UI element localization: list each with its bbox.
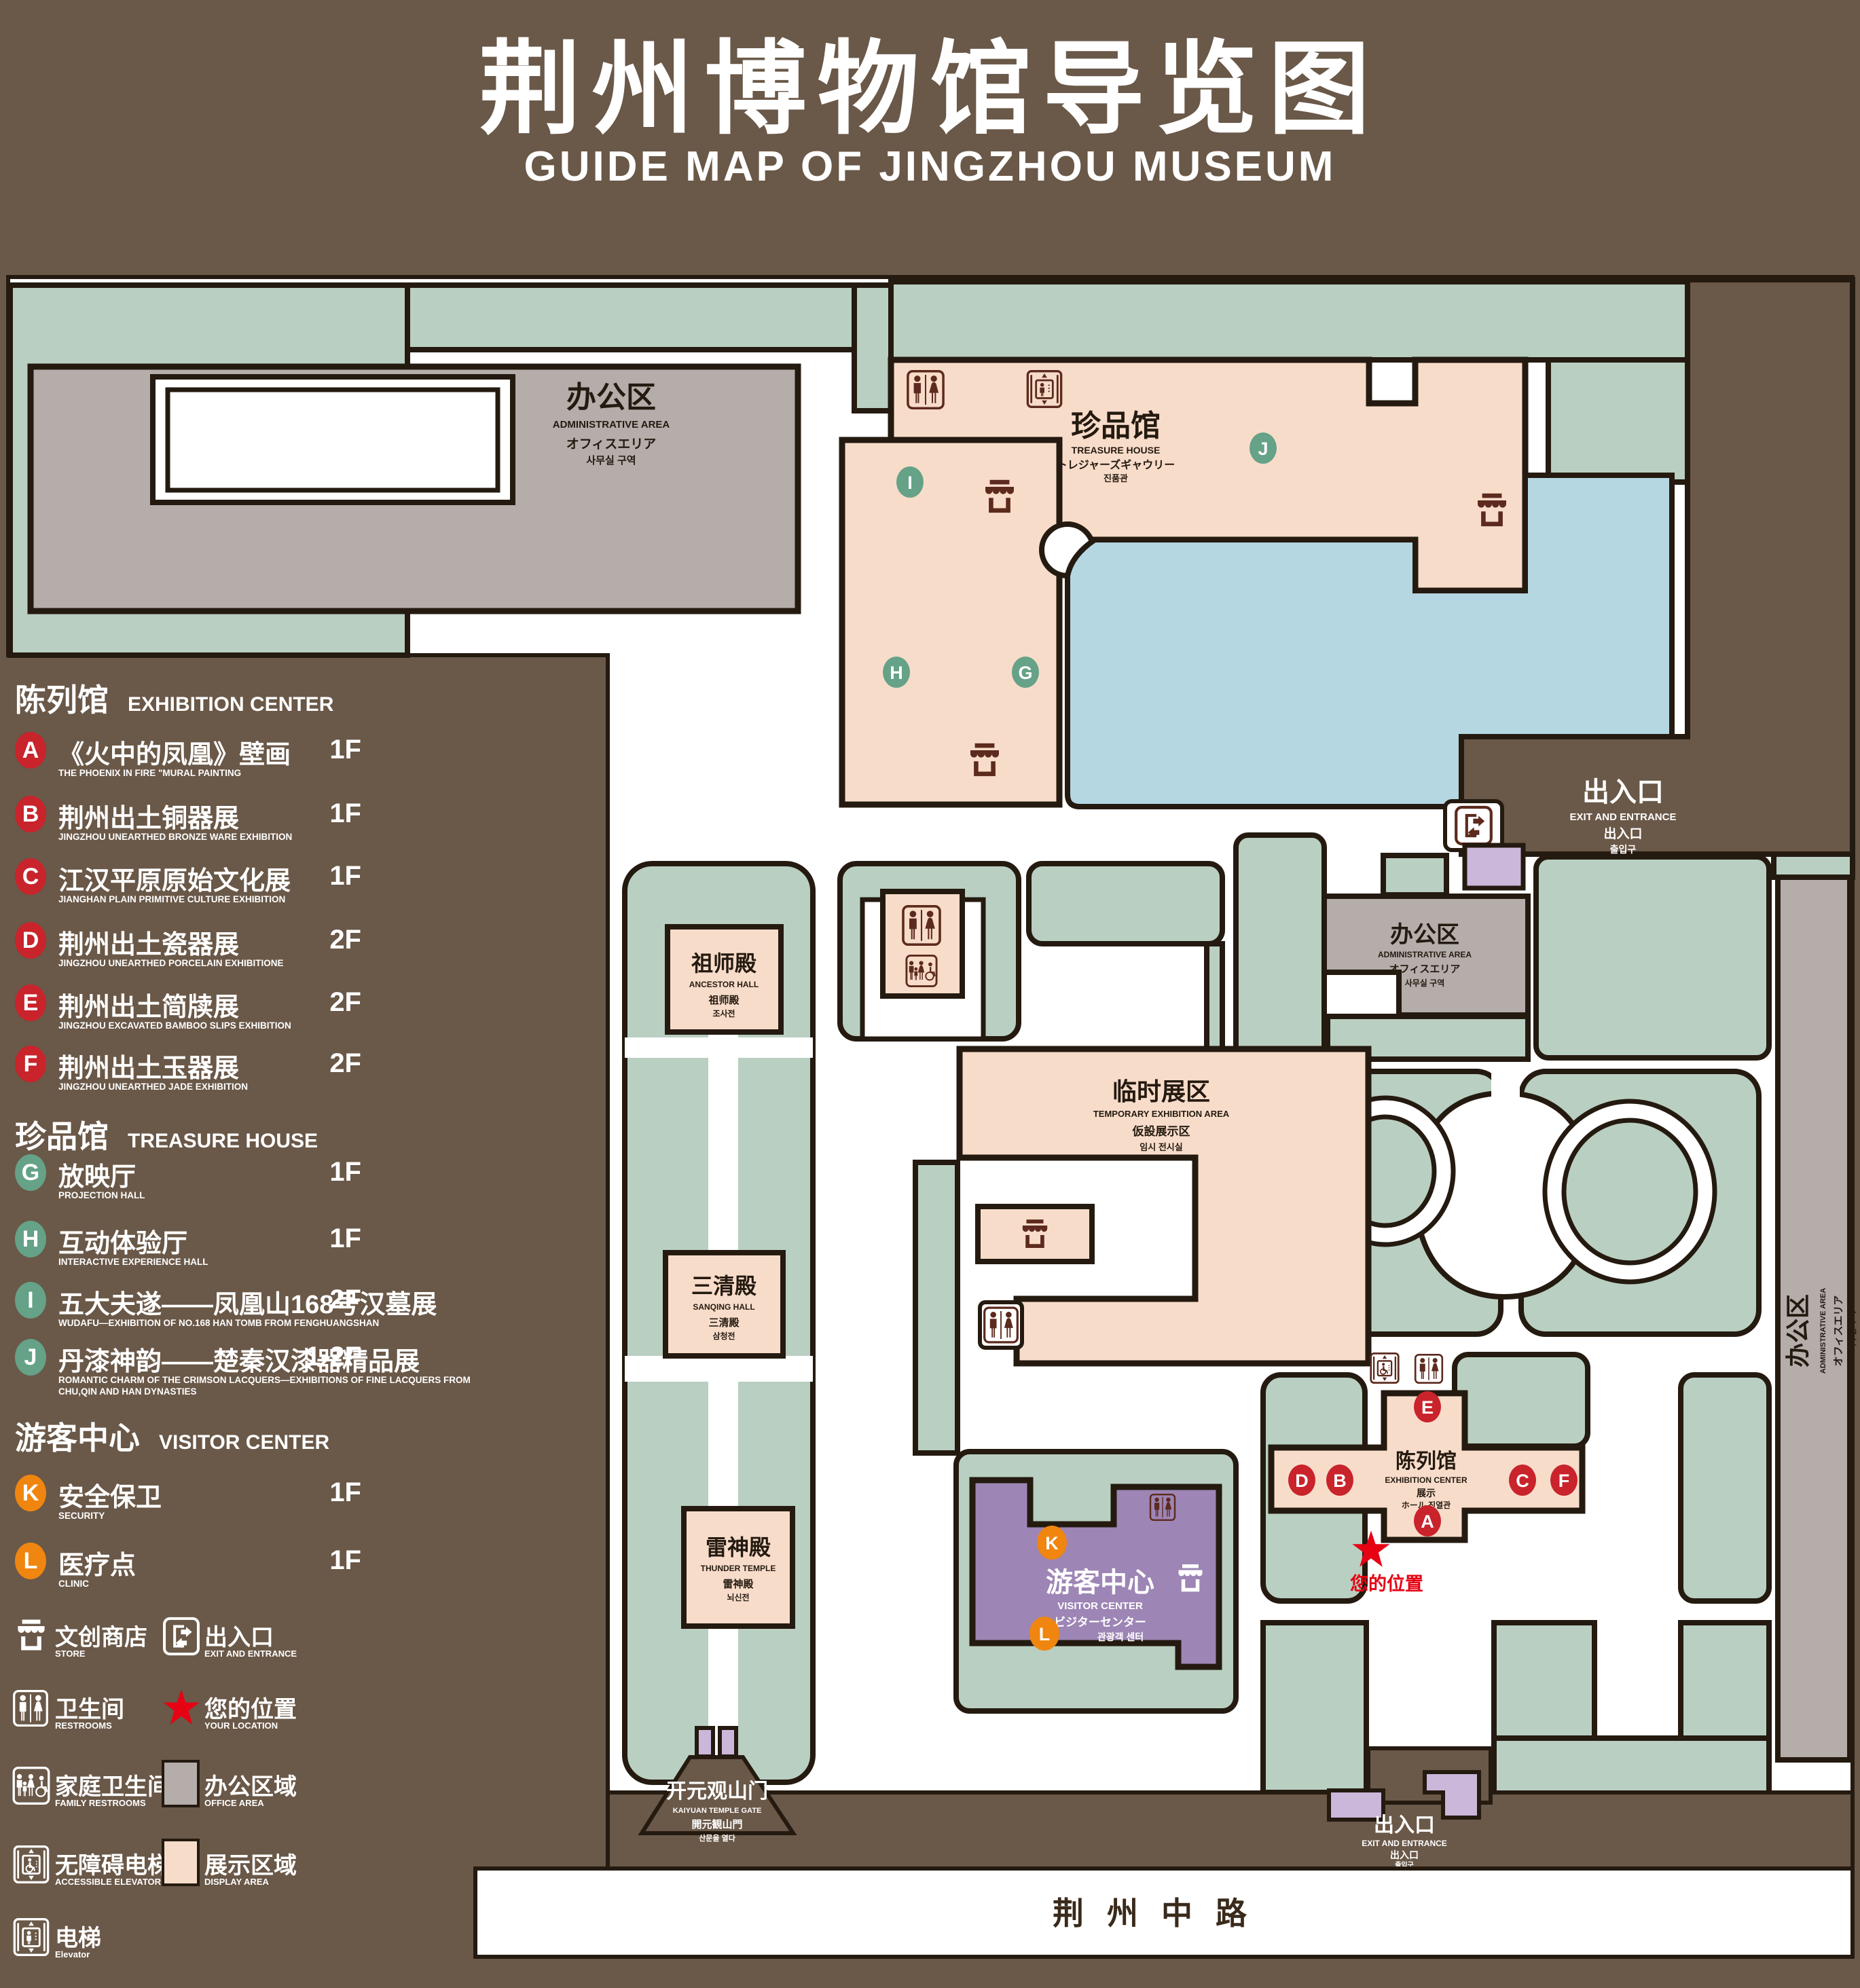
map-marker-j: J [1250, 432, 1277, 464]
legend-picto-family-restroom: 家庭卫生间 FAMILY RESTROOMS [12, 1760, 50, 1815]
map-marker-e: E [1414, 1391, 1441, 1422]
thunder-label-cn: 雷神殿 [706, 1535, 771, 1560]
treasure-label-en: TREASURE HOUSE [1072, 445, 1161, 456]
treasure-label-jp: トレジャーズギャウリー [1057, 458, 1175, 471]
elevator-icon [12, 1911, 50, 1963]
admin2-label-cn: 办公区 [1390, 922, 1459, 948]
svg-text:B: B [1333, 1471, 1347, 1491]
admin1-label-cn: 办公区 [566, 381, 656, 414]
sanqing-label-cn2: 三清殿 [708, 1317, 740, 1329]
map-marker-i: I [896, 466, 924, 498]
map-marker-f: F [1550, 1465, 1578, 1496]
svg-text:C: C [1516, 1471, 1529, 1491]
thunder-label-en: THUNDER TEMPLE [701, 1564, 776, 1573]
restroom-icon [12, 1682, 49, 1734]
svg-text:L: L [1039, 1624, 1051, 1644]
badge-j: J [15, 1339, 46, 1376]
admin1-label-en: ADMINISTRATIVE AREA [553, 419, 670, 430]
thunder-label-cn2: 雷神殿 [723, 1578, 754, 1590]
badge-k: K [15, 1475, 46, 1511]
location-star-icon [162, 1688, 201, 1727]
admin2-label-kr: 사무실 구역 [1405, 978, 1445, 988]
accessible-elevator-icon [12, 1839, 50, 1890]
admin3-label-kr: 사무실 구역 [1847, 1311, 1857, 1351]
sanqing-label-cn: 三清殿 [691, 1274, 756, 1298]
legend-picto-office-area: 办公区域 OFFICE AREA [162, 1760, 200, 1807]
badge-a: A [15, 732, 46, 769]
exhibition-label-cn: 陈列馆 [1396, 1450, 1457, 1473]
ancestor-label-cn: 祖师殿 [691, 951, 756, 976]
visitor-label-jp: ビジターセンター [1054, 1616, 1146, 1629]
floor-c: 1F [287, 861, 361, 891]
gate-label-kr: 산문을 열다 [699, 1833, 736, 1843]
visitor-label-cn: 游客中心 [1046, 1568, 1154, 1598]
admin2-label-jp: オフィスエリア [1389, 963, 1461, 975]
floor-b: 1F [287, 798, 361, 829]
admin2-label-en: ADMINISTRATIVE AREA [1378, 950, 1472, 959]
admin1-label-jp: オフィスエリア [566, 437, 657, 452]
legend-picto-display-area: 展示区域 DISPLAY AREA [162, 1839, 200, 1886]
floor-g: 1F [287, 1157, 361, 1188]
admin-strip-right: 办公区 ADMINISTRATIVE AREA オフィスエリア 사무실 구역 [1778, 877, 1857, 1760]
ancestor-label-en: ANCESTOR HALL [689, 980, 759, 989]
guide-map-poster: 荆州博物馆导览图 GUIDE MAP OF JINGZHOU MUSEUM [0, 0, 1860, 1988]
temporary-label-kr: 임시 전시실 [1139, 1142, 1182, 1152]
legend-section-exhibition-center: 陈列馆EXHIBITION CENTER [15, 676, 333, 720]
svg-text:J: J [1258, 439, 1268, 459]
temporary-label-cn: 临时展区 [1112, 1078, 1210, 1105]
thunder-temple: 雷神殿 THUNDER TEMPLE 雷神殿 뇌신전 [684, 1509, 792, 1626]
floor-l: 1F [287, 1545, 361, 1576]
svg-text:G: G [1018, 663, 1032, 683]
family-restroom-icon [12, 1760, 50, 1811]
section-title-cn: 游客中心 [15, 1420, 140, 1456]
map-marker-d: D [1288, 1465, 1315, 1496]
temporary-label-jp: 仮設展示区 [1132, 1124, 1190, 1138]
restroom-block [862, 891, 983, 1039]
treasure-label-cn: 珍品馆 [1071, 409, 1161, 443]
exhibition-label-jp: 展示 [1417, 1488, 1436, 1498]
road-label: 荆州中路 [1053, 1896, 1270, 1931]
your-location-label: 您的位置 [1350, 1573, 1423, 1594]
sanqing-hall: 三清殿 SANQING HALL 三清殿 삼청전 [665, 1253, 783, 1356]
legend-picto-accessible-elevator: 无障碍电梯 ACCESSIBLE ELEVATOR [12, 1839, 50, 1894]
legend-section-treasure-house: 珍品馆TREASURE HOUSE [15, 1112, 318, 1157]
visitor-label-kr: 관광객 센터 [1097, 1632, 1144, 1642]
floor-k: 1F [287, 1477, 361, 1508]
svg-text:A: A [1421, 1511, 1434, 1532]
exit-booth [1465, 845, 1523, 888]
legend-picto-store: 文创商店 STORE [12, 1610, 50, 1664]
ancestor-label-kr: 조사전 [712, 1008, 735, 1018]
floor-d: 2F [287, 925, 361, 955]
svg-text:H: H [890, 663, 903, 683]
map-marker-k: K [1037, 1526, 1067, 1560]
svg-text:K: K [1045, 1533, 1059, 1553]
badge-l: L [15, 1543, 46, 1579]
badge-i: I [15, 1282, 46, 1319]
legend-section-visitor-center: 游客中心VISITOR CENTER [15, 1414, 329, 1458]
temporary-label-en: TEMPORARY EXHIBITION AREA [1093, 1109, 1230, 1119]
store-block [978, 1207, 1092, 1262]
ancestor-hall: 祖师殿 ANCESTOR HALL 祖师殿 조사전 [668, 927, 781, 1032]
map-marker-h: H [883, 657, 910, 688]
floor-e: 2F [287, 987, 361, 1018]
badge-g: G [15, 1154, 46, 1191]
display-area-swatch [162, 1839, 200, 1886]
exit-icon [162, 1610, 201, 1662]
floor-i: 2F [287, 1285, 361, 1315]
admin3-label-jp: オフィスエリア [1833, 1295, 1844, 1367]
admin1-label-kr: 사무실 구역 [586, 455, 636, 466]
svg-text:E: E [1421, 1397, 1434, 1418]
map-marker-c: C [1509, 1465, 1536, 1496]
sanqing-label-en: SANQING HALL [693, 1302, 754, 1312]
gate-label-cn: 开元观山门 [666, 1780, 768, 1803]
svg-text:F: F [1558, 1471, 1570, 1491]
campus-map: 办公区 ADMINISTRATIVE AREA オフィスエリア 사무실 구역 珍… [0, 0, 1860, 1988]
map-marker-a: A [1414, 1505, 1441, 1536]
badge-f: F [15, 1046, 46, 1082]
section-title-cn: 陈列馆 [15, 682, 109, 718]
section-title-en: EXHIBITION CENTER [128, 693, 333, 716]
section-title-cn: 珍品馆 [15, 1119, 109, 1154]
exit-bottom-label-cn: 出入口 [1374, 1814, 1435, 1837]
exit-top-label-kr: 출입구 [1610, 844, 1637, 855]
admin3-label-en: ADMINISTRATIVE AREA [1819, 1288, 1827, 1374]
floor-a: 1F [287, 735, 361, 765]
legend-picto-exit: 出入口 EXIT AND ENTRANCE [162, 1610, 201, 1665]
legend-picto-restroom: 卫生间 RESTROOMS [12, 1682, 49, 1737]
exit-top-label-en: EXIT AND ENTRANCE [1570, 811, 1677, 823]
thunder-label-kr: 뇌신전 [727, 1592, 749, 1602]
visitor-label-en: VISITOR CENTER [1057, 1600, 1143, 1612]
office-area-swatch [162, 1760, 200, 1807]
legend-picto-your-location: 您的位置 YOUR LOCATION [162, 1682, 201, 1731]
badge-c: C [15, 858, 46, 895]
exit-bottom-label-jp: 出入口 [1390, 1849, 1419, 1860]
floor-h: 1F [287, 1223, 361, 1254]
sanqing-label-kr: 삼청전 [712, 1331, 735, 1341]
map-marker-g: G [1012, 657, 1039, 688]
floor-f: 2F [287, 1048, 361, 1079]
treasure-label-kr: 진품관 [1104, 473, 1128, 483]
admin-building-topleft: 办公区 ADMINISTRATIVE AREA オフィスエリア 사무실 구역 [31, 367, 798, 611]
exit-bottom-label-en: EXIT AND ENTRANCE [1362, 1839, 1447, 1848]
exhibition-label-en: EXHIBITION CENTER [1385, 1475, 1467, 1485]
gate-label-jp: 開元観山門 [691, 1818, 742, 1830]
floor-j: 1-2F [287, 1342, 361, 1372]
section-title-en: TREASURE HOUSE [128, 1130, 318, 1152]
badge-b: B [15, 796, 46, 832]
store-icon [12, 1610, 50, 1661]
legend-picto-elevator: 电梯 Elevator [12, 1911, 50, 1966]
gate-label-en: KAIYUAN TEMPLE GATE [673, 1807, 762, 1815]
badge-d: D [15, 922, 46, 959]
section-title-en: VISITOR CENTER [159, 1431, 329, 1454]
admin3-label-cn: 办公区 [1784, 1294, 1812, 1367]
badge-h: H [15, 1221, 46, 1257]
ancestor-label-cn2: 祖师殿 [708, 994, 740, 1006]
badge-e: E [15, 984, 46, 1021]
svg-text:D: D [1295, 1471, 1309, 1491]
map-marker-b: B [1326, 1465, 1353, 1496]
exit-top-label-cn: 出入口 [1582, 777, 1664, 807]
svg-text:I: I [907, 473, 913, 493]
exit-top-label-jp: 出入口 [1603, 826, 1642, 841]
map-marker-l: L [1029, 1617, 1059, 1651]
